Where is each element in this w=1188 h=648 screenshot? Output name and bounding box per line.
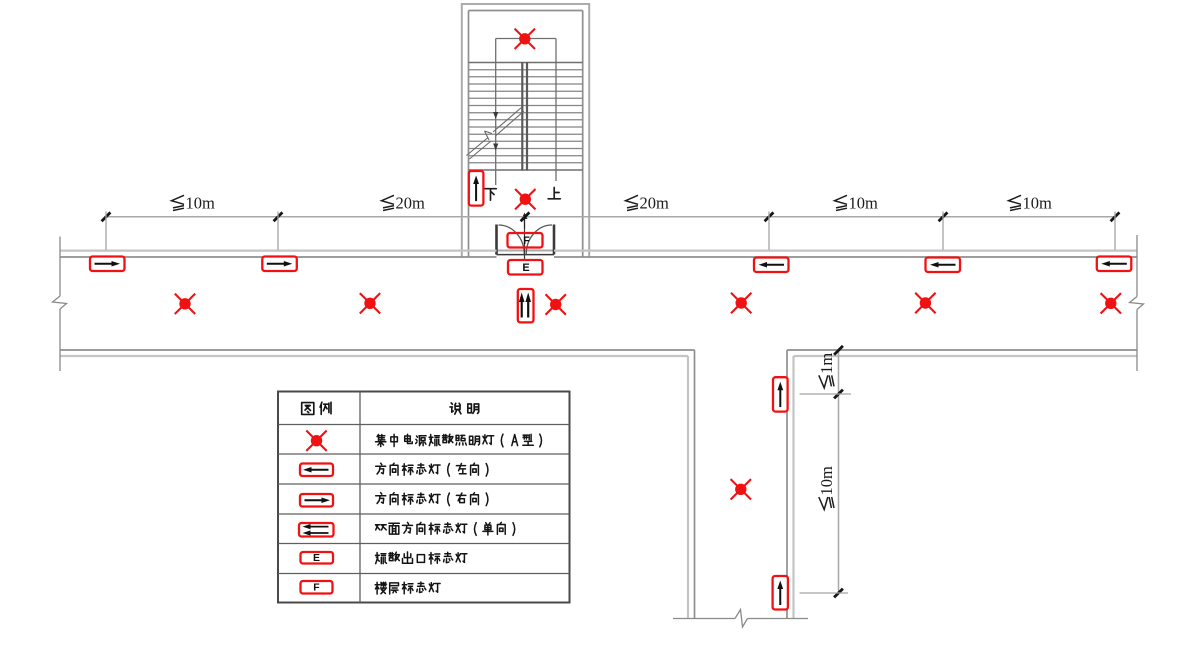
svg-text:F: F [523,235,530,247]
svg-text:E: E [313,552,320,564]
svg-text:20m: 20m [396,194,426,213]
svg-text:20m: 20m [640,194,670,213]
svg-text:10m: 10m [817,466,836,496]
svg-text:10m: 10m [186,194,216,213]
svg-text:10m: 10m [849,194,879,213]
svg-text:10m: 10m [1023,194,1053,213]
svg-text:F: F [313,582,320,594]
svg-text:E: E [522,262,529,274]
svg-text:1m: 1m [817,353,836,374]
